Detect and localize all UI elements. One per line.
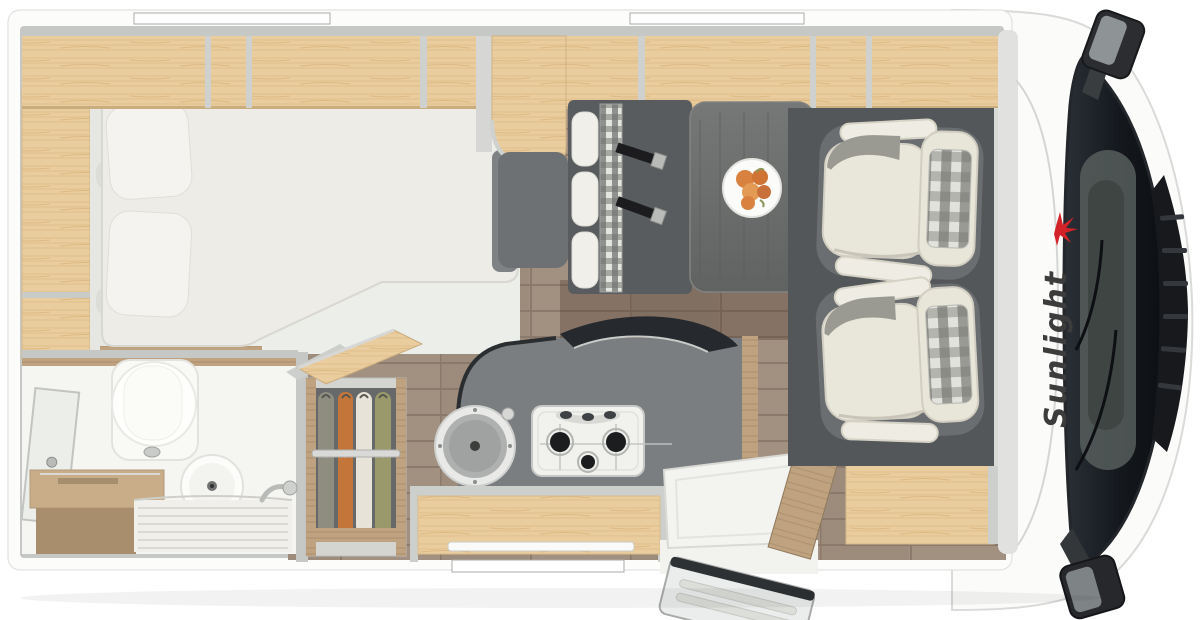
dinette-bench: [568, 100, 692, 294]
cabinet-divider: [246, 36, 252, 108]
cab-seat-lounge: [788, 108, 1008, 466]
bed-shelf-divider: [22, 292, 90, 298]
door-knob: [46, 457, 57, 468]
faucet: [502, 408, 514, 420]
basin-drain: [210, 484, 214, 488]
swivel-seat-passenger: [814, 274, 986, 449]
wardrobe-side: [306, 378, 316, 556]
brand-logo-text: Sunlight: [1039, 270, 1074, 428]
wardrobe-side: [396, 378, 406, 556]
burner: [606, 432, 626, 452]
kitchen-drawers: [410, 486, 668, 562]
cabinet-divider: [420, 36, 427, 108]
floorplan-canvas: Sunlight: [0, 0, 1200, 620]
floorplan-svg: Sunlight: [0, 0, 1200, 620]
kitchen-sink: [435, 406, 515, 486]
cabinet-divider: [638, 36, 645, 108]
hanging-wood-panel: [492, 36, 566, 164]
swivel-seat-driver: [815, 115, 985, 287]
clothes-rail: [312, 450, 400, 457]
window-rear-top: [134, 13, 330, 24]
sink-drain: [470, 441, 480, 451]
window-dinette-top: [630, 13, 804, 24]
bench-cushion: [572, 232, 598, 288]
cabinet-divider: [810, 36, 816, 108]
burner: [581, 455, 595, 469]
stove-knob: [604, 411, 616, 419]
pillow: [105, 210, 192, 318]
ground-shadow: [20, 588, 1100, 608]
counter-recess: [58, 478, 118, 484]
rear-bed-area: [22, 90, 520, 358]
bench-cushion: [572, 112, 598, 166]
bench-cushion: [572, 172, 598, 226]
shower-head: [283, 481, 297, 495]
b-pillar: [998, 30, 1018, 554]
fruit-plate: [723, 159, 781, 217]
bed-side-shelf: [22, 90, 90, 358]
stove-knob: [582, 413, 594, 421]
cabinet-divider: [866, 36, 872, 108]
stove-knob: [560, 411, 572, 419]
burner: [550, 432, 570, 452]
drawer-handle: [448, 542, 634, 551]
wardrobe-shelf: [316, 528, 396, 542]
pillow: [105, 101, 193, 200]
bathroom-area: [22, 350, 308, 562]
window-kitchen-bottom: [452, 560, 624, 572]
dinette-side-mat: [498, 152, 568, 268]
flush-button: [144, 447, 160, 457]
toilet: [112, 360, 198, 460]
partition-tab: [476, 36, 492, 152]
cabinet-divider: [205, 36, 211, 108]
vanity-front: [36, 508, 136, 554]
